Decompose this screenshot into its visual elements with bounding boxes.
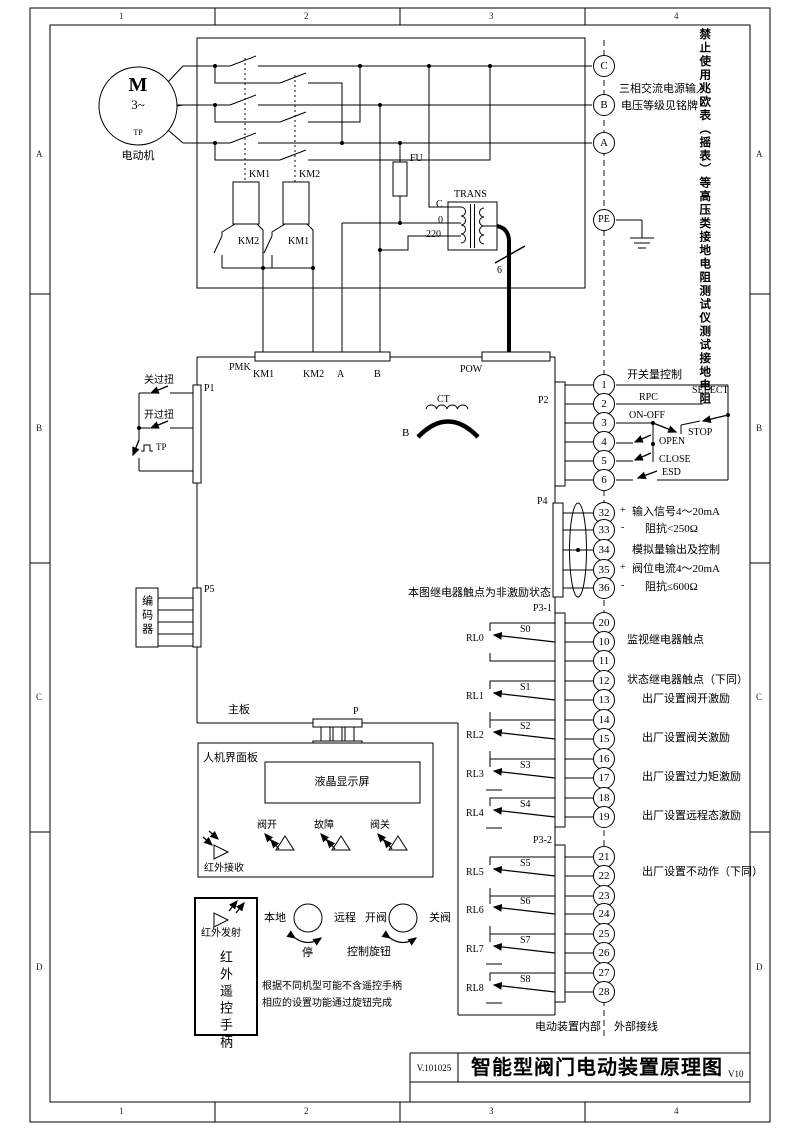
p31-wires xyxy=(486,623,593,828)
grid-row-a: A xyxy=(36,149,43,159)
remote-note-1: 根据不同机型可能不含遥控手柄 xyxy=(262,981,402,993)
s4-label: S4 xyxy=(520,799,531,811)
terminal-11: 11 xyxy=(593,650,615,672)
motor-phase: 3~ xyxy=(131,98,145,113)
p2-label: P2 xyxy=(538,395,549,407)
esd-label: ESD xyxy=(662,467,681,479)
grid-row-c2: C xyxy=(756,692,762,702)
mainboard-label: 主板 xyxy=(228,704,250,717)
junction-dots xyxy=(137,64,730,552)
p31-note-5: 出厂设置过力矩激励 xyxy=(642,771,741,784)
ct-coil xyxy=(426,405,468,409)
select-label: SELECT xyxy=(692,385,729,397)
p31-note-6: 出厂设置远程态激励 xyxy=(642,810,741,823)
close-label: CLOSE xyxy=(659,454,691,466)
terminal-A: A xyxy=(593,132,615,154)
close-torque-label: 关过扭 xyxy=(144,375,174,387)
p31-note-3: 出厂设置阀开激励 xyxy=(642,693,730,706)
p5-label: P5 xyxy=(204,584,215,596)
knob-open-label: 开阀 xyxy=(365,912,387,925)
pmk-pin-km2: KM2 xyxy=(303,369,324,381)
open-torque-label: 开过扭 xyxy=(144,410,174,422)
rl2-label: RL2 xyxy=(466,730,484,742)
pmk-pin-b: B xyxy=(374,369,381,381)
sign-32: + xyxy=(620,505,626,517)
grid-row-c: C xyxy=(36,692,42,702)
rl8-label: RL8 xyxy=(466,983,484,995)
knob-remote-label: 远程 xyxy=(334,912,356,925)
p31-note-1: 监视继电器触点 xyxy=(627,634,704,647)
terminal-6: 6 xyxy=(593,469,615,491)
p31-bar xyxy=(555,613,565,827)
km1-interlock-label: KM2 xyxy=(238,236,259,248)
motor-letter: M xyxy=(129,74,148,97)
p4-label: P4 xyxy=(537,496,548,508)
p32-note: 出厂设置不动作（下同） xyxy=(642,866,763,879)
p-connector-label: P xyxy=(353,706,359,718)
led-fault-label: 故障 xyxy=(314,820,334,832)
s0-label: S0 xyxy=(520,624,531,636)
tp-switch-label: TP xyxy=(156,442,167,452)
analog-line5: 阻抗≤600Ω xyxy=(645,581,698,594)
relay-state-note: 本图继电器触点为非激励状态 xyxy=(408,587,551,600)
terminal-B: B xyxy=(593,94,615,116)
fuse-label: FU xyxy=(410,153,423,165)
rl6-label: RL6 xyxy=(466,905,484,917)
rl4-label: RL4 xyxy=(466,808,484,820)
terminal-24: 24 xyxy=(593,903,615,925)
pmk-label: PMK xyxy=(229,362,251,374)
p31-label: P3-1 xyxy=(533,603,552,615)
ir-tx-label: 红外发射 xyxy=(201,928,241,940)
terminal-33: 33 xyxy=(593,519,615,541)
km1-coil-label: KM1 xyxy=(249,169,270,181)
sign-35: + xyxy=(620,562,626,574)
terminal-36: 36 xyxy=(593,577,615,599)
remote-note-2: 相应的设置功能通过旋钮完成 xyxy=(262,998,392,1010)
grid-col-1b: 1 xyxy=(119,1106,124,1116)
pmk-pin-km1: KM1 xyxy=(253,369,274,381)
grid-col-4b: 4 xyxy=(674,1106,679,1116)
ct-phase-label: B xyxy=(402,427,409,440)
p31-note-4: 出厂设置阀关激励 xyxy=(642,732,730,745)
rl0-label: RL0 xyxy=(466,633,484,645)
terminal-17: 17 xyxy=(593,767,615,789)
pmk-pin-a: A xyxy=(337,369,344,381)
rl1-label: RL1 xyxy=(466,691,484,703)
trans-pin-220: 220 xyxy=(426,229,441,241)
doc-number: V.101025 xyxy=(417,1063,452,1073)
grid-col-3: 3 xyxy=(489,11,494,21)
s6-label: S6 xyxy=(520,896,531,908)
trans-pin-c: C xyxy=(436,199,443,211)
s1-label: S1 xyxy=(520,682,531,694)
ct-conductor-arc xyxy=(418,422,478,438)
km-link-lines xyxy=(245,58,295,182)
km2-interlock-label: KM1 xyxy=(288,236,309,248)
p32-wires xyxy=(486,857,593,1003)
rl3-label: RL3 xyxy=(466,769,484,781)
rl7-label: RL7 xyxy=(466,944,484,956)
p5-bar xyxy=(193,588,201,647)
pmk-bar xyxy=(255,352,390,361)
rl5-label: RL5 xyxy=(466,867,484,879)
led-open-label: 阀开 xyxy=(257,820,277,832)
onoff-label: ON-OFF xyxy=(629,410,665,422)
grid-row-a2: A xyxy=(756,149,763,159)
grid-col-2b: 2 xyxy=(304,1106,309,1116)
terminal-26: 26 xyxy=(593,942,615,964)
knob-control xyxy=(389,904,417,932)
pow-bar xyxy=(482,352,550,361)
terminal-34: 34 xyxy=(593,539,615,561)
analog-line3: 模拟量输出及控制 xyxy=(632,544,720,557)
s3-label: S3 xyxy=(520,760,531,772)
knob-local-label: 本地 xyxy=(264,912,286,925)
p32-label: P3-2 xyxy=(533,835,552,847)
open-label: OPEN xyxy=(659,436,685,448)
grid-row-d2: D xyxy=(756,962,763,972)
p4-bar xyxy=(553,503,563,597)
km1-coil xyxy=(233,182,259,224)
encoder-label: 编码器 xyxy=(140,595,153,637)
supply-note-1: 三相交流电源输入 xyxy=(619,83,707,96)
rpc-label: RPC xyxy=(639,392,658,404)
pow-cable xyxy=(497,226,509,352)
drawing-title: 智能型阀门电动装置原理图 xyxy=(471,1057,723,1080)
supply-note-2: 电压等级见铭牌 xyxy=(621,100,698,113)
megger-warning: 禁止使用兆欧表（摇表）等高压类接地电阻测试仪测试接地电阻 xyxy=(697,28,710,406)
led-close-label: 阀关 xyxy=(370,820,390,832)
p32-bar xyxy=(555,845,565,1002)
s8-label: S8 xyxy=(520,974,531,986)
terminal-13: 13 xyxy=(593,689,615,711)
ir-rx-label: 红外接收 xyxy=(204,863,244,875)
pow-label: POW xyxy=(460,364,482,376)
sign-33: - xyxy=(621,522,624,534)
p2-bar xyxy=(555,382,565,486)
grid-col-4: 4 xyxy=(674,11,679,21)
grid-col-2: 2 xyxy=(304,11,309,21)
motor-tp-label: TP xyxy=(133,128,142,137)
terminal-PE: PE xyxy=(593,209,615,231)
analog-line2: 阻抗<250Ω xyxy=(645,523,698,536)
knob-stop-label: 停 xyxy=(302,947,313,960)
terminal-C: C xyxy=(593,55,615,77)
p1-label: P1 xyxy=(204,383,215,395)
knob-mode xyxy=(294,904,322,932)
s2-label: S2 xyxy=(520,721,531,733)
fuse-symbol xyxy=(393,162,407,196)
analog-line4: 阀位电流4～20mA xyxy=(632,563,720,576)
knob-close-label: 关阀 xyxy=(429,912,451,925)
terminal-28: 28 xyxy=(593,981,615,1003)
internal-label: 电动装置内部 xyxy=(535,1021,601,1034)
sign-36: - xyxy=(621,580,624,592)
transformer-label: TRANS xyxy=(454,189,487,201)
km2-coil xyxy=(283,182,309,224)
terminal-15: 15 xyxy=(593,728,615,750)
lcd-label: 液晶显示屏 xyxy=(315,776,370,789)
stop-label: STOP xyxy=(688,427,712,439)
s7-label: S7 xyxy=(520,935,531,947)
p-connector-top xyxy=(313,719,362,727)
cable-count: 6 xyxy=(497,265,502,277)
remote-handle-label: 红外遥控手柄 xyxy=(217,950,232,1052)
analog-line1: 输入信号4～20mA xyxy=(632,506,720,519)
schematic-sheet: 1 2 3 4 1 2 3 4 A B C D A B C D M 3~ TP … xyxy=(0,0,800,1131)
drawing-version: V10 xyxy=(728,1069,744,1079)
external-label: 外部接线 xyxy=(614,1021,658,1034)
ct-label: CT xyxy=(437,394,450,406)
motor-name: 电动机 xyxy=(122,150,155,163)
grid-col-1: 1 xyxy=(119,11,124,21)
switch-control-title: 开关量控制 xyxy=(627,369,682,382)
p31-note-2: 状态继电器触点（下同） xyxy=(627,674,748,687)
grid-col-3b: 3 xyxy=(489,1106,494,1116)
hmi-panel-label: 人机界面板 xyxy=(203,752,258,765)
p1-bar xyxy=(193,385,201,483)
trans-pin-0: 0 xyxy=(438,215,443,227)
grid-row-b: B xyxy=(36,423,42,433)
terminal-19: 19 xyxy=(593,806,615,828)
s5-label: S5 xyxy=(520,858,531,870)
km2-coil-label: KM2 xyxy=(299,169,320,181)
grid-row-b2: B xyxy=(756,423,762,433)
terminal-22: 22 xyxy=(593,865,615,887)
control-knob-label: 控制旋钮 xyxy=(347,946,391,959)
grid-row-d: D xyxy=(36,962,43,972)
